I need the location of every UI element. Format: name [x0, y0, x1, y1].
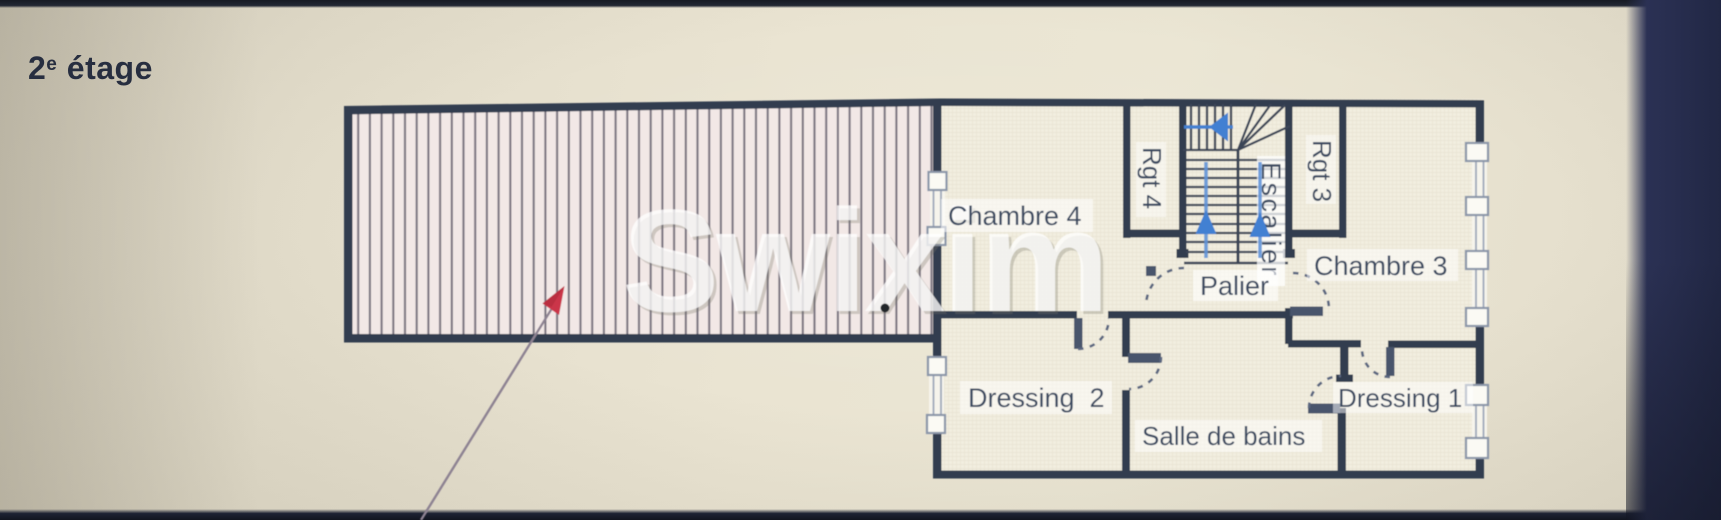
- svg-text:Chambre 3: Chambre 3: [1314, 251, 1448, 281]
- svg-text:Rgt 3: Rgt 3: [1307, 140, 1337, 202]
- svg-text:Dressing 1: Dressing 1: [1338, 383, 1462, 413]
- svg-text:Rgt 4: Rgt 4: [1137, 147, 1167, 209]
- svg-text:Palier: Palier: [1200, 271, 1269, 301]
- svg-text:Dressing 2: Dressing 2: [968, 383, 1105, 413]
- svg-text:Chambre 4: Chambre 4: [948, 201, 1082, 231]
- svg-text:Salle de bains: Salle de bains: [1142, 421, 1305, 451]
